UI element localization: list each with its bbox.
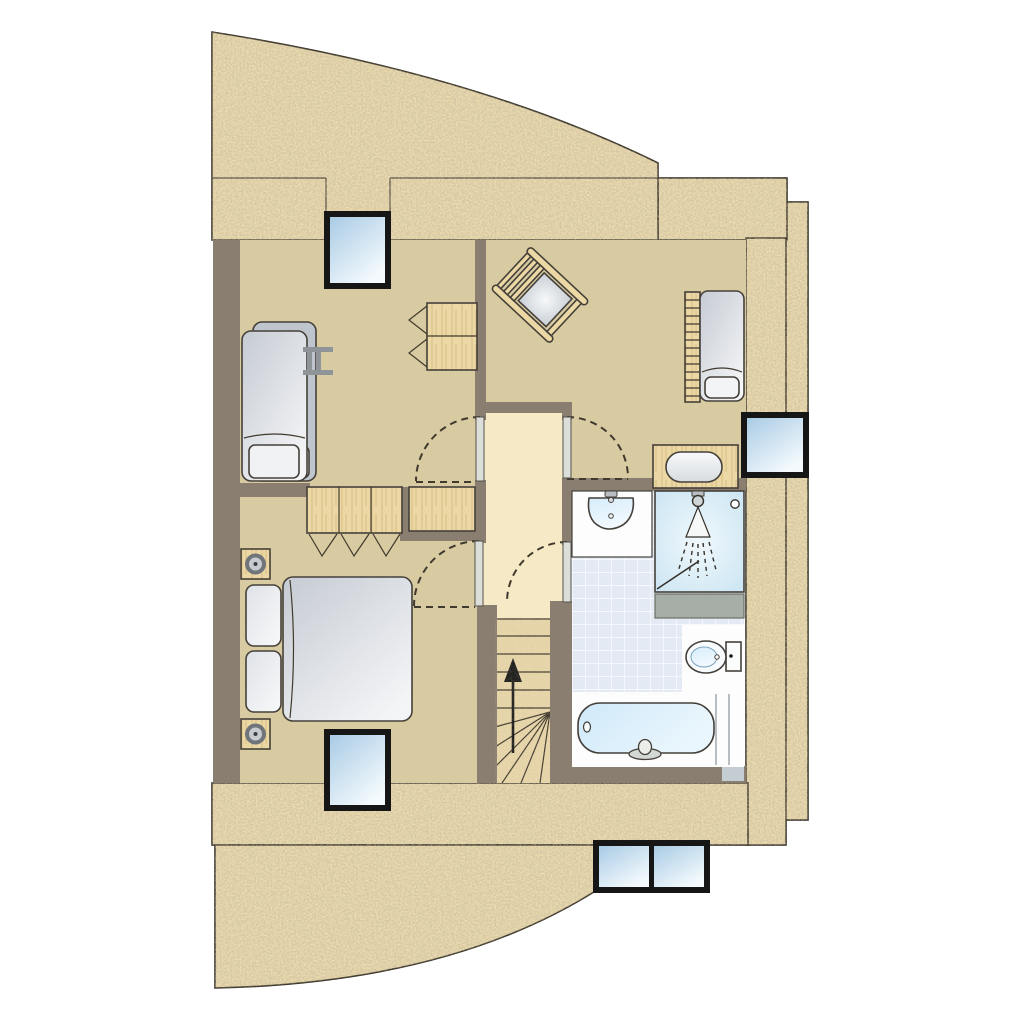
floor-plan-drawing bbox=[0, 0, 1024, 1024]
floor-plan-page bbox=[0, 0, 1024, 1024]
north-window bbox=[324, 211, 391, 289]
south-bedroom-window-glass bbox=[330, 735, 385, 805]
double-window-glass-left bbox=[599, 846, 649, 887]
wall-speckle-texture bbox=[0, 0, 1024, 1024]
east-window bbox=[741, 412, 809, 478]
east-window-glass bbox=[747, 418, 803, 472]
south-east-double-window bbox=[593, 840, 710, 893]
double-window-glass-right bbox=[654, 846, 704, 887]
north-window-glass bbox=[330, 217, 385, 283]
south-bedroom-window bbox=[324, 729, 391, 811]
